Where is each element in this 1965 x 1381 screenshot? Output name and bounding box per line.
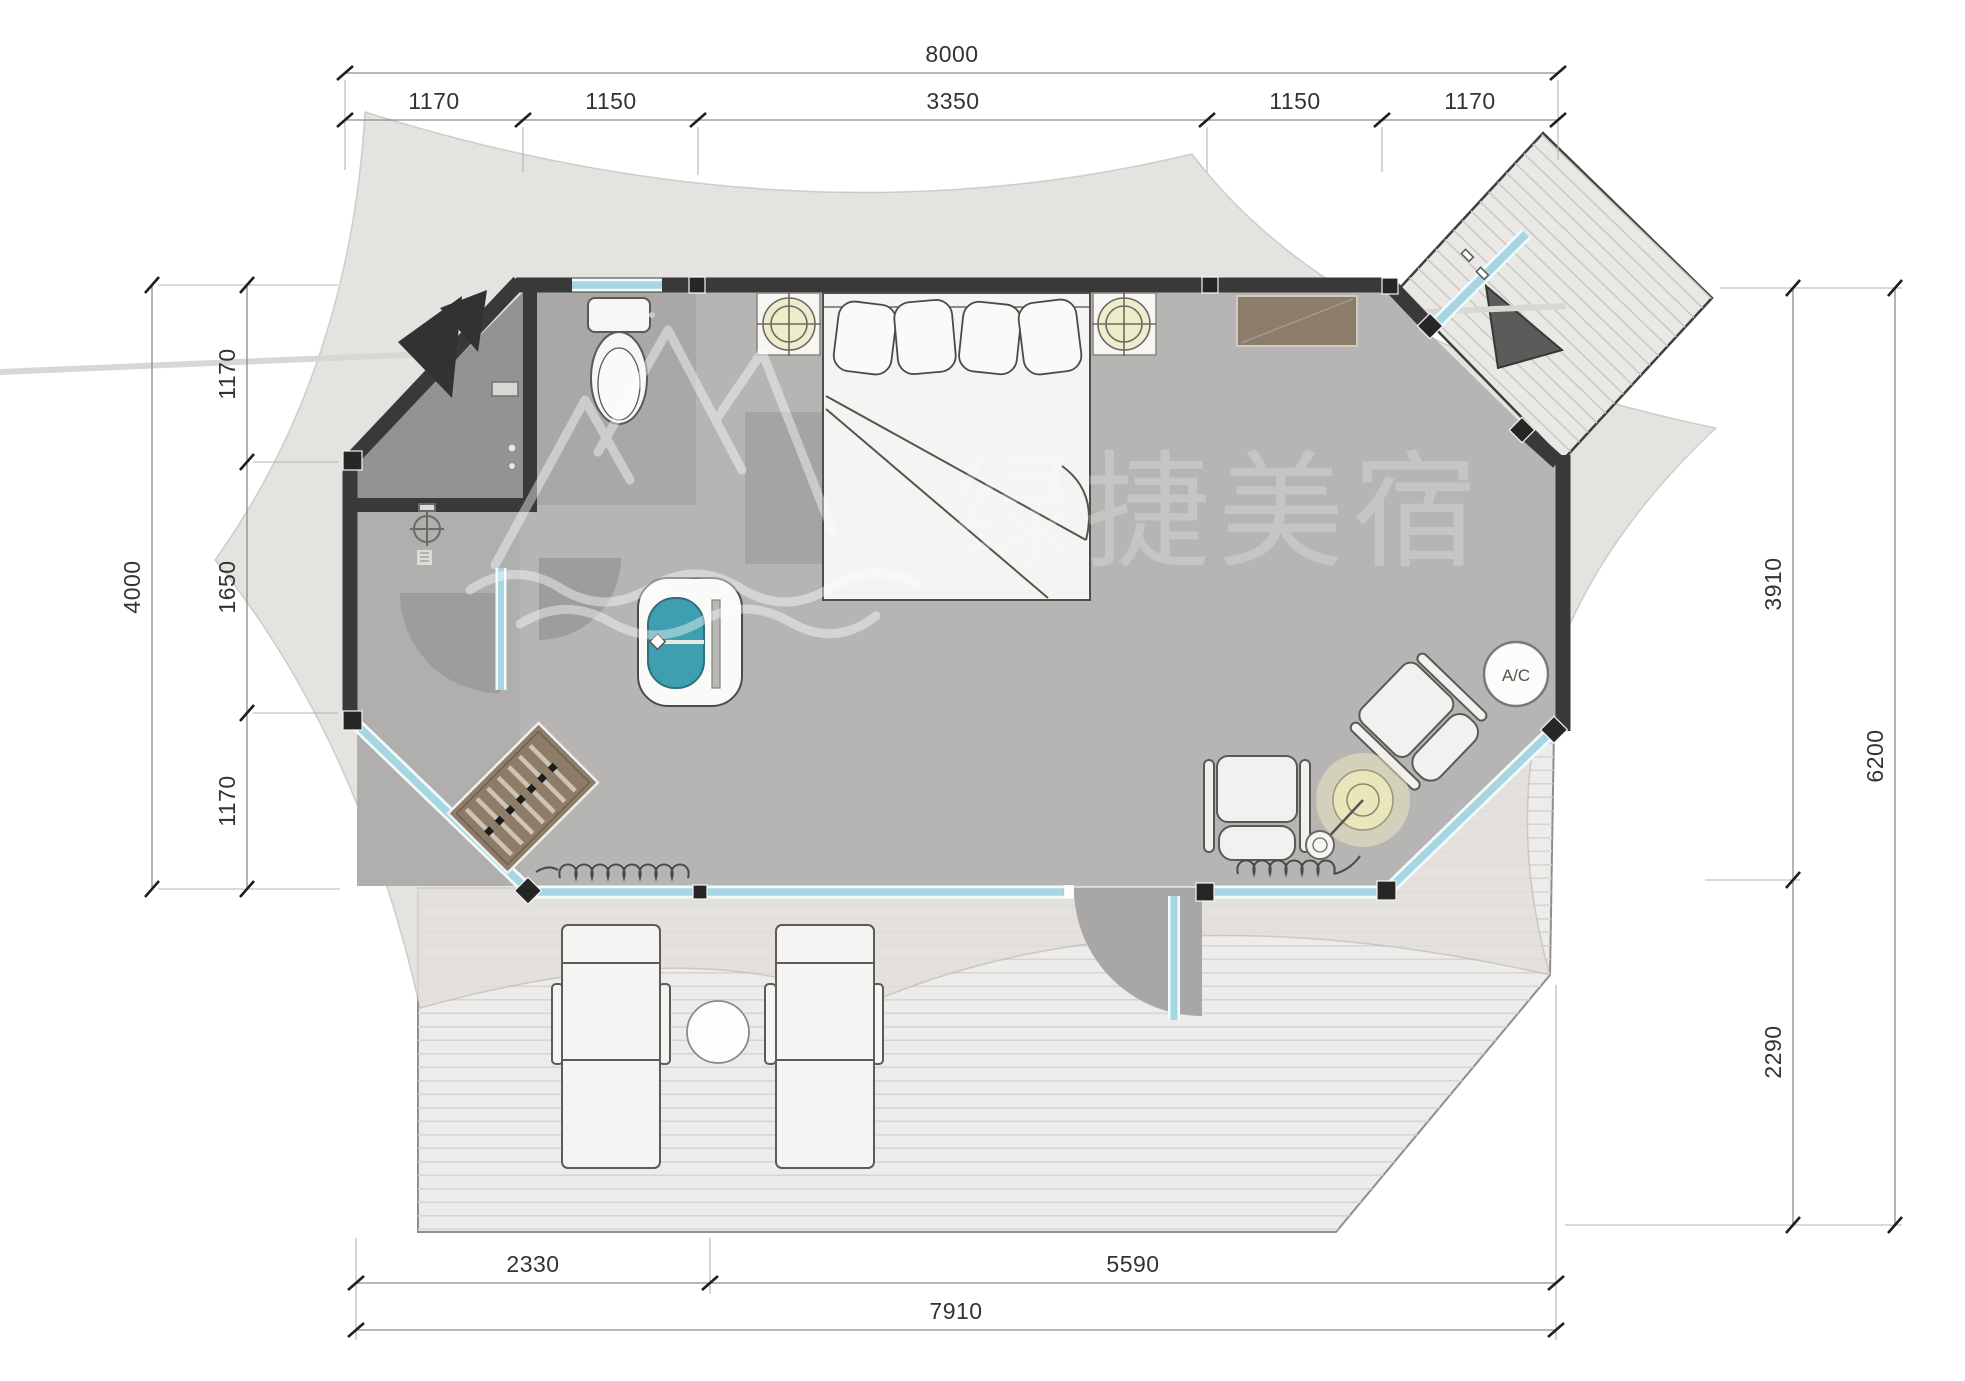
console-cabinet (1237, 296, 1357, 346)
floor-plan-svg: A/C 绿捷美宿 (0, 0, 1965, 1381)
dim-top-seg4: 1150 (1269, 88, 1320, 114)
door-end-cap (1064, 885, 1074, 899)
dim-bottom-seg2: 5590 (1106, 1251, 1159, 1277)
lamp-base (1306, 831, 1334, 859)
dim-top-seg1: 1170 (408, 88, 459, 114)
floor-plan-page: A/C 绿捷美宿 (0, 0, 1965, 1381)
dim-right-total: 6200 (1862, 729, 1888, 782)
dim-bottom-seg1: 2330 (506, 1251, 559, 1277)
dim-top-seg2: 1150 (585, 88, 636, 114)
armchair (1204, 756, 1310, 860)
dim-left-seg2: 1650 (214, 560, 240, 613)
dim-left-seg3: 1170 (214, 775, 240, 826)
sun-lounger (765, 925, 883, 1168)
dim-right-seg2: 2290 (1760, 1025, 1786, 1078)
dim-right-seg1: 3910 (1760, 557, 1786, 610)
ac-label: A/C (1502, 666, 1530, 685)
sun-lounger (552, 925, 670, 1168)
dim-left-seg1: 1170 (214, 348, 240, 399)
washbasin (638, 578, 742, 706)
dim-left-total: 4000 (119, 560, 145, 613)
dim-top-seg5: 1170 (1444, 88, 1495, 114)
dim-bottom-total: 7910 (929, 1298, 982, 1324)
dim-top-total: 8000 (925, 41, 978, 67)
watermark-text: 绿捷美宿 (950, 439, 1486, 586)
ac-unit: A/C (1484, 642, 1548, 706)
dim-top-seg3: 3350 (926, 88, 979, 114)
deck-table (687, 1001, 749, 1063)
floor-drain-icon (417, 550, 432, 565)
